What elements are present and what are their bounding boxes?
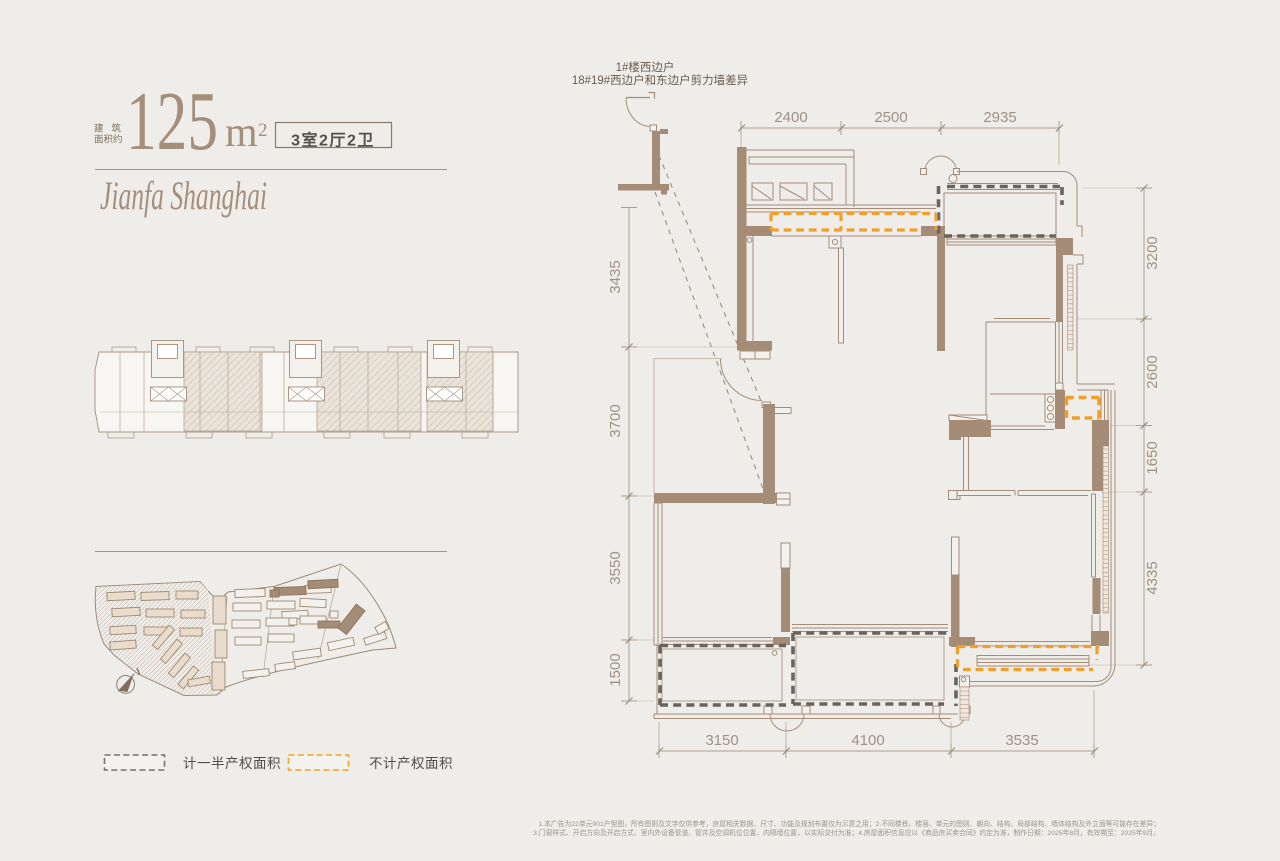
svg-text:1650: 1650 bbox=[1144, 441, 1161, 474]
svg-text:Jianfa Shanghai: Jianfa Shanghai bbox=[100, 173, 267, 218]
svg-text:3535: 3535 bbox=[1005, 732, 1038, 749]
svg-text:3700: 3700 bbox=[607, 404, 624, 437]
svg-text:2935: 2935 bbox=[983, 109, 1016, 126]
svg-text:1.本广告为22单元901户型图，所有图则及文字仅供参考，房: 1.本广告为22单元901户型图，所有图则及文字仅供参考，房屋相关数据、尺寸、功… bbox=[538, 819, 1160, 828]
svg-text:1#楼西边户: 1#楼西边户 bbox=[616, 60, 675, 74]
svg-text:2600: 2600 bbox=[1144, 355, 1161, 388]
svg-text:2: 2 bbox=[258, 120, 268, 141]
svg-text:m: m bbox=[225, 110, 258, 156]
svg-text:2500: 2500 bbox=[874, 109, 907, 126]
svg-text:4335: 4335 bbox=[1144, 561, 1161, 594]
svg-text:3.门窗样式、开启方向及开启方式、室内外设备管道、管井及空调: 3.门窗样式、开启方向及开启方式、室内外设备管道、管井及空调机位位置、内隔墙位置… bbox=[533, 828, 1160, 837]
svg-text:2400: 2400 bbox=[774, 109, 807, 126]
svg-text:不计产权面积: 不计产权面积 bbox=[369, 755, 453, 771]
svg-text:1500: 1500 bbox=[607, 653, 624, 686]
svg-text:4100: 4100 bbox=[851, 732, 884, 749]
svg-text:125: 125 bbox=[126, 75, 218, 168]
svg-text:3550: 3550 bbox=[607, 551, 624, 584]
svg-text:3150: 3150 bbox=[705, 732, 738, 749]
svg-text:3435: 3435 bbox=[607, 260, 624, 293]
svg-text:建筑: 建筑 bbox=[94, 123, 129, 135]
svg-text:3室2厅2卫: 3室2厅2卫 bbox=[291, 131, 375, 150]
svg-text:面积约: 面积约 bbox=[94, 134, 123, 146]
svg-text:18#19#西边户和东边户剪力墙差异: 18#19#西边户和东边户剪力墙差异 bbox=[572, 73, 748, 87]
svg-text:3200: 3200 bbox=[1144, 236, 1161, 269]
svg-text:计一半产权面积: 计一半产权面积 bbox=[183, 755, 281, 771]
